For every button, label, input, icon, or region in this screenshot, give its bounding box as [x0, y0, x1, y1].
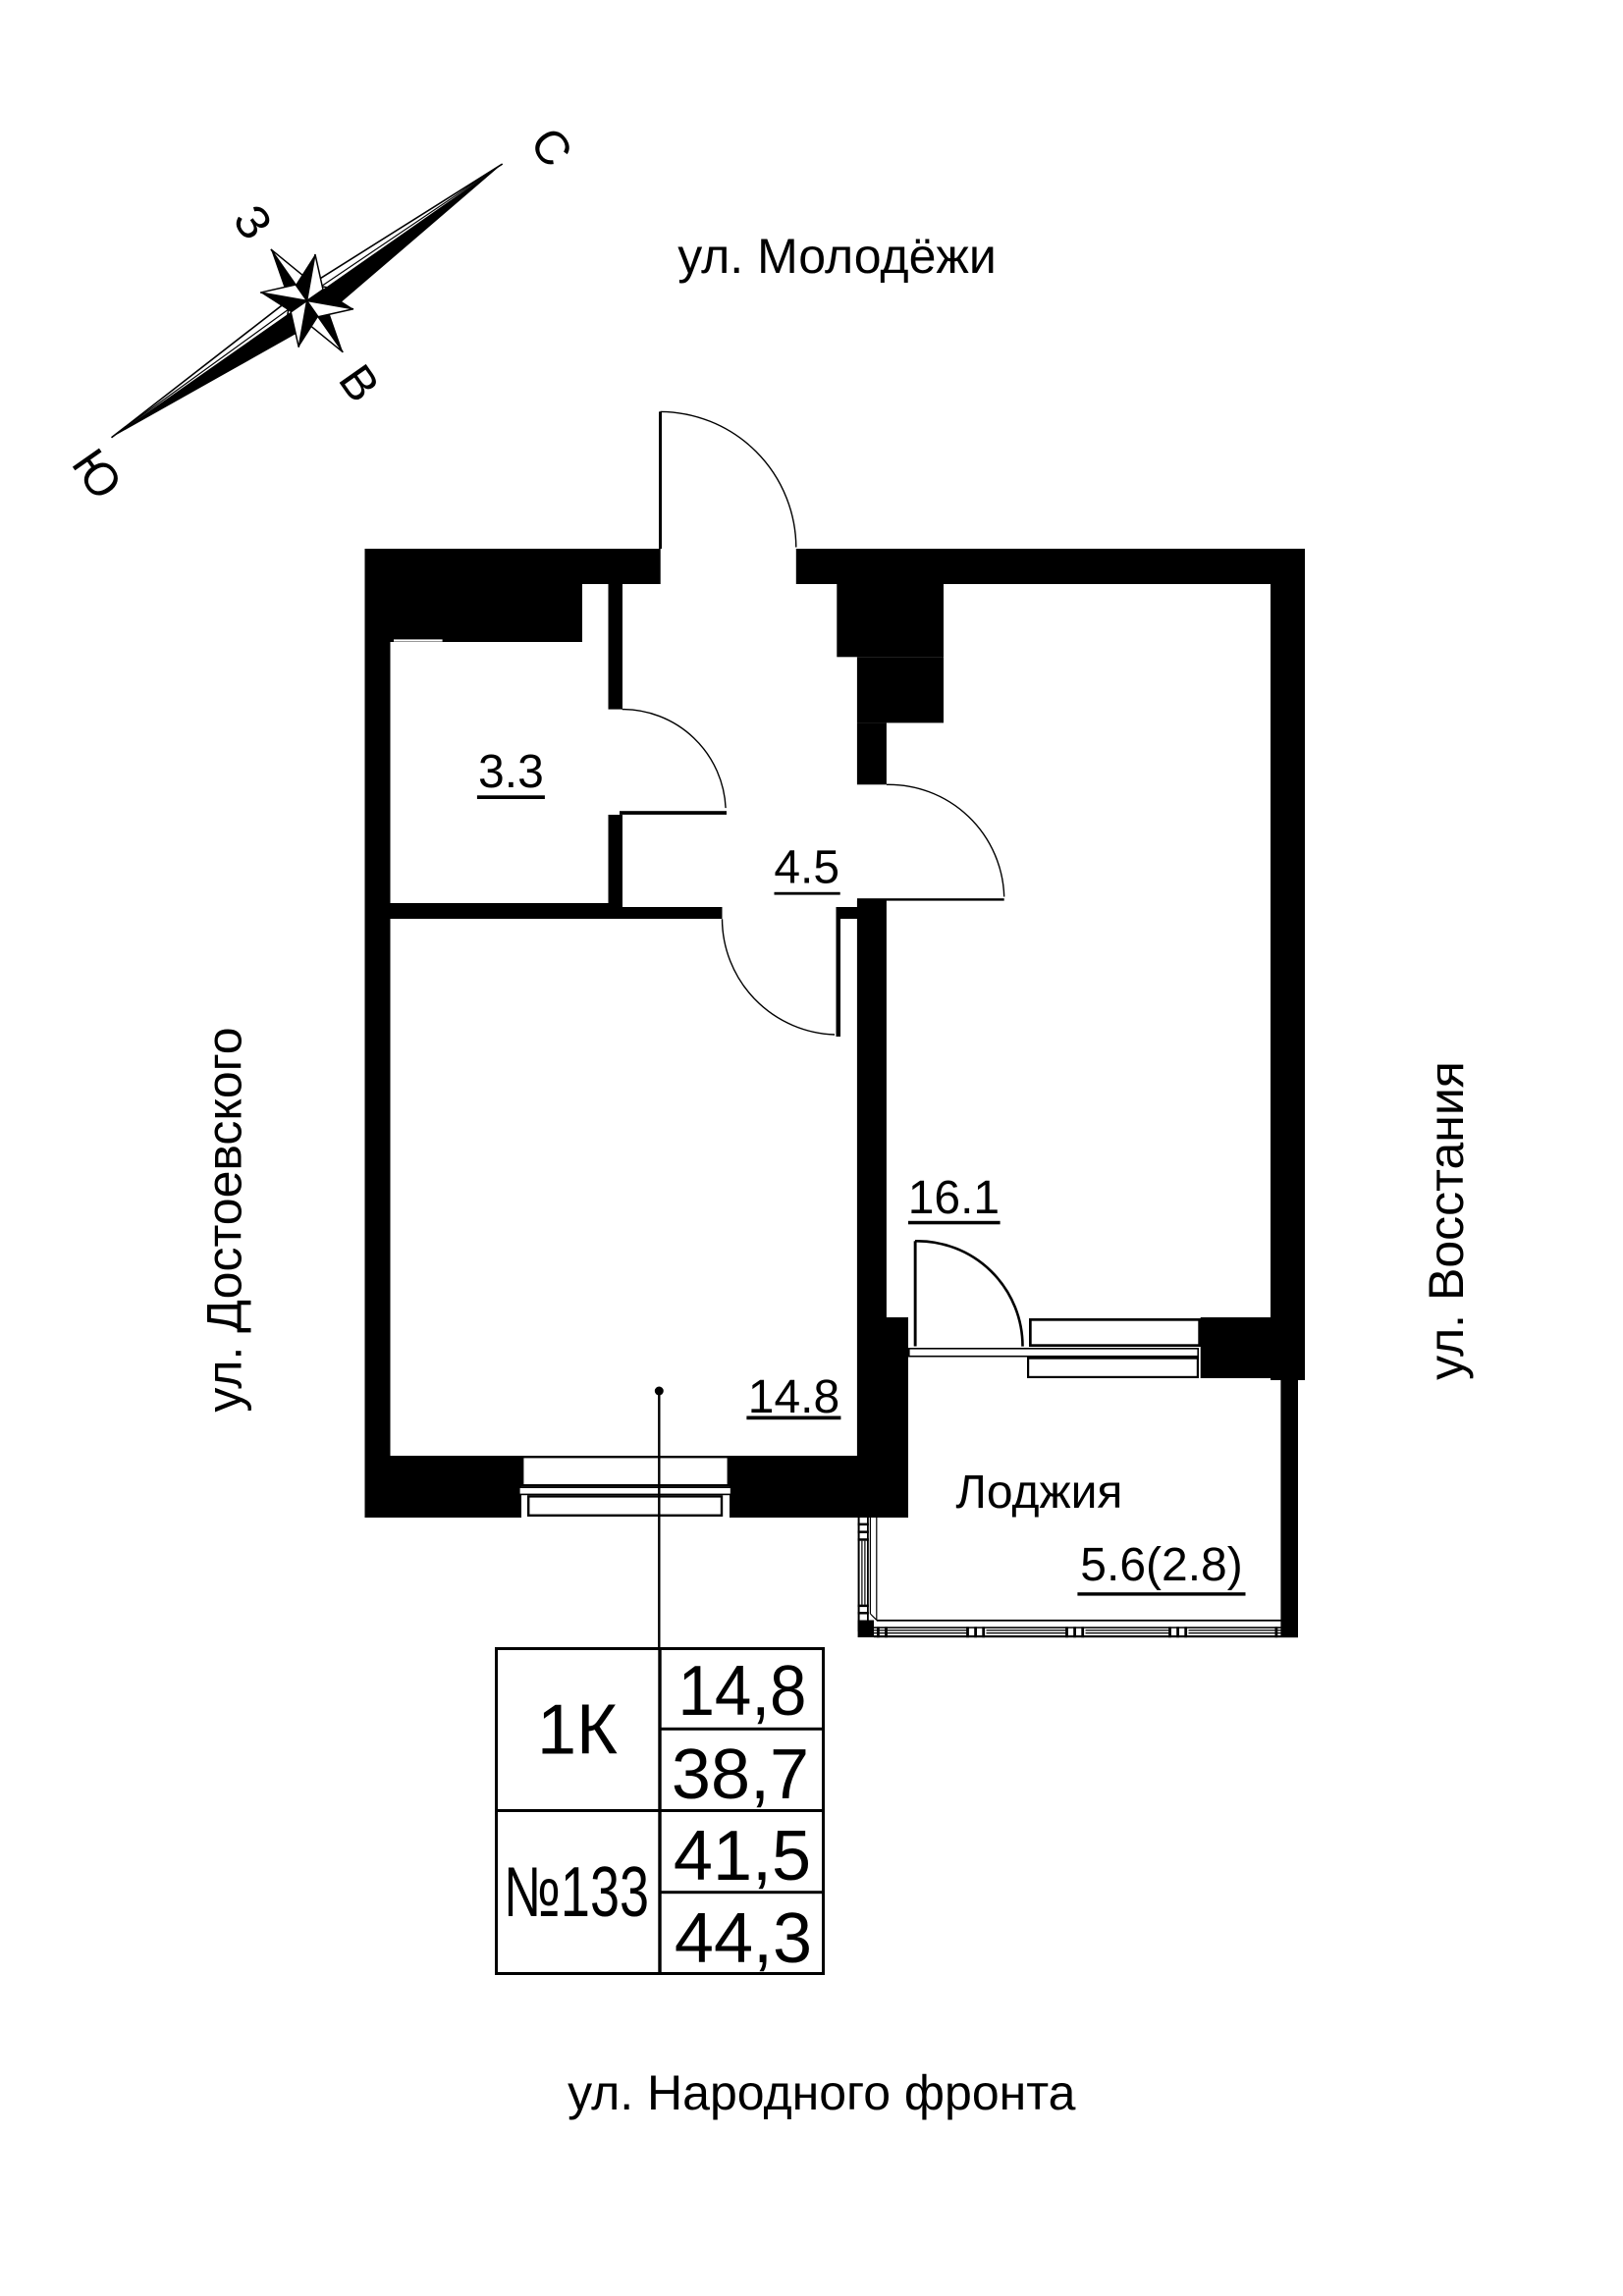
svg-text:41,5: 41,5 [674, 1817, 811, 1896]
svg-text:Лоджия: Лоджия [955, 1467, 1122, 1519]
svg-text:№133: №133 [504, 1853, 649, 1932]
svg-text:38,7: 38,7 [672, 1735, 809, 1814]
svg-text:44,3: 44,3 [675, 1899, 812, 1978]
svg-text:16.1: 16.1 [908, 1172, 1000, 1224]
svg-text:4.5: 4.5 [774, 842, 839, 894]
svg-text:14.8: 14.8 [748, 1371, 839, 1423]
svg-text:5.6(2.8): 5.6(2.8) [1080, 1539, 1242, 1591]
svg-text:ул. Достоевского: ул. Достоевского [196, 1027, 251, 1412]
svg-text:1К: 1К [537, 1691, 618, 1770]
svg-text:14,8: 14,8 [678, 1652, 807, 1731]
svg-text:ул. Народного фронта: ул. Народного фронта [568, 2065, 1075, 2120]
svg-text:ул. Молодёжи: ул. Молодёжи [677, 229, 997, 284]
svg-text:3.3: 3.3 [478, 746, 544, 798]
svg-text:ул. Восстания: ул. Восстания [1419, 1061, 1474, 1380]
